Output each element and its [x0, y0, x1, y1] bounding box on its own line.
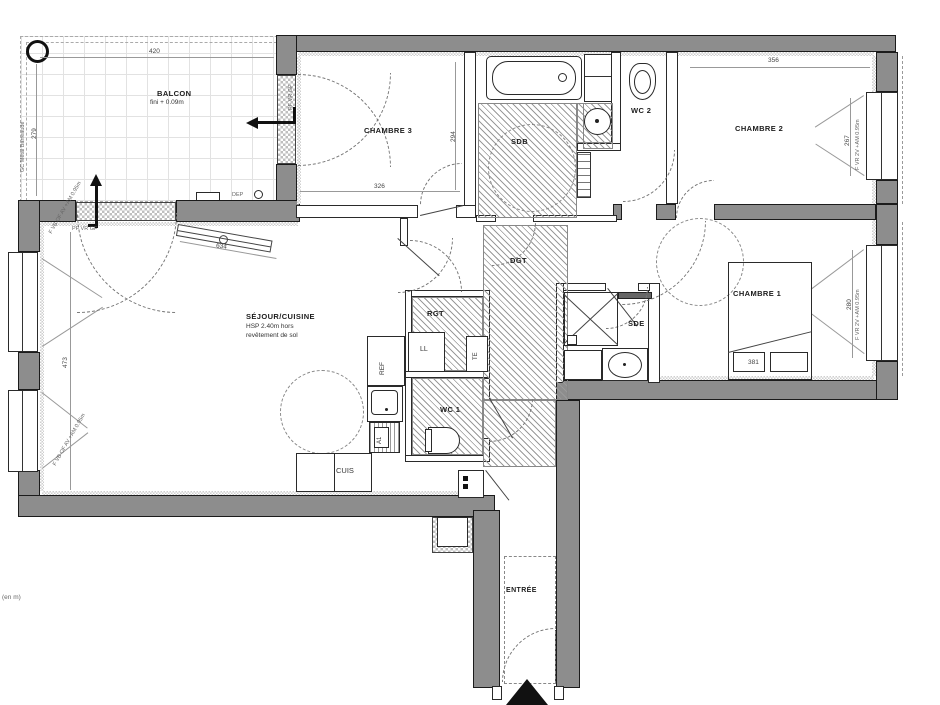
sde-cabinet	[564, 350, 602, 380]
faucet-dot-icon	[623, 363, 626, 366]
wall-corridor-right	[556, 400, 580, 688]
label-washer: LL	[420, 346, 428, 353]
turning-circle-sdb	[488, 124, 576, 212]
room-label-dgt: DGT	[510, 256, 527, 265]
towel-radiator-icon	[577, 152, 591, 198]
room-note-balcon: fini + 0.09m	[150, 99, 184, 106]
partition-ch3-sdb	[464, 52, 476, 208]
room-note-sejour-2: revêtement de sol	[246, 332, 298, 339]
sink-basin-icon	[371, 390, 398, 415]
room-label-chambre2: CHAMBRE 2	[735, 124, 783, 133]
arrow-head-up-icon	[90, 174, 102, 186]
annotation-ch2-window: F VR 2V +AM 0.95m	[855, 119, 861, 170]
dim-line	[690, 67, 870, 68]
window-sejour-2	[8, 390, 38, 472]
wall-south	[556, 380, 898, 400]
dim-line	[455, 62, 456, 190]
dim-ch3-width: 326	[374, 183, 385, 190]
entry-direction-icon	[506, 679, 548, 705]
wall-right-ch1-lower	[876, 361, 898, 400]
electrical-panel	[458, 470, 484, 498]
dim-ch2-width: 356	[768, 57, 779, 64]
wall-balcony-bottom-right	[176, 200, 300, 222]
access-arrow-up-icon	[95, 186, 98, 228]
room-note-sejour-1: HSP 2.40m hors	[246, 323, 294, 330]
window-sejour-1	[8, 252, 38, 352]
wall-ch1-top-c	[714, 204, 876, 220]
wall-ch1-top-b	[656, 204, 676, 220]
annotation-ch1-window: F VR 2V +AM 0.95m	[855, 289, 861, 340]
turning-circle-cuisine	[280, 370, 364, 454]
room-label-entree: ENTRÉE	[506, 587, 537, 594]
dim-ch2-window: 267	[844, 135, 851, 146]
facade-line	[902, 222, 903, 376]
window-chambre2	[866, 92, 898, 180]
arrow-head-left-icon	[246, 117, 258, 129]
window-chambre1	[866, 245, 898, 361]
entry-door-jamb	[554, 686, 564, 700]
wall-right-ch2-lower	[876, 180, 898, 204]
room-label-chambre1: CHAMBRE 1	[733, 289, 781, 298]
insulation-strip	[42, 491, 476, 495]
wall-left-middle	[18, 352, 40, 390]
dim-ch3-height: 294	[450, 131, 457, 142]
floor-plan: BALCON fini + 0.09m CHAMBRE 3 SDB WC 2 C…	[0, 0, 940, 705]
facade-line	[902, 56, 903, 204]
toilet-bowl-wc2	[634, 70, 651, 94]
fridge-box	[367, 336, 405, 386]
dim-ch1-window: 280	[846, 299, 853, 310]
dim-ch1-bed: 381	[748, 359, 759, 366]
dim-sejour-diag: 634	[216, 242, 228, 250]
wall-top	[296, 35, 896, 52]
label-dishwasher: A1	[377, 437, 383, 444]
partition-wc2-ch2	[666, 52, 678, 204]
dim-balcon-height: 279	[31, 128, 38, 139]
room-label-sde: SDE	[628, 319, 645, 328]
bathtub-drain-icon	[558, 73, 567, 82]
wall-right-ch2-upper	[876, 52, 898, 92]
insulation-strip	[40, 222, 44, 491]
window-swing-line	[811, 249, 864, 290]
dim-balcon-width: 420	[149, 48, 160, 55]
shower-drain-icon	[567, 335, 577, 345]
room-label-sdb: SDB	[511, 137, 528, 146]
entree-zone	[504, 556, 556, 684]
faucet-dot-icon	[595, 119, 599, 123]
balcony-railing	[26, 42, 277, 201]
window-swing-line	[42, 307, 103, 347]
balcony-column-icon	[26, 40, 49, 63]
duct-box-inner	[437, 517, 468, 547]
label-dryer: TE	[473, 352, 479, 360]
room-label-wc2: WC 2	[631, 106, 651, 115]
annotation-balcony-railing: GC Métal Barreaudé	[20, 122, 26, 172]
access-arrow-left-icon	[258, 121, 296, 124]
drain-icon	[254, 190, 263, 199]
dim-line	[70, 232, 71, 490]
partition-rgt-wc1	[405, 371, 490, 378]
room-label-wc1: WC 1	[440, 405, 460, 414]
wall-corridor-left	[473, 510, 500, 688]
dim-sejour-height: 473	[62, 357, 69, 368]
toilet-tank-wc1	[425, 429, 432, 452]
dim-line	[40, 57, 274, 58]
entry-door-jamb	[492, 686, 502, 700]
room-label-chambre3: CHAMBRE 3	[364, 126, 412, 135]
wall-balcony-right-upper	[276, 35, 297, 75]
annotation-sejour-door: PF VR GF	[72, 226, 97, 232]
wall-left-upper	[18, 200, 40, 252]
label-kitchen-counter: CUIS	[336, 466, 354, 475]
sdb-cabinet	[584, 54, 612, 102]
label-dep: DEP	[232, 192, 243, 198]
faucet-dot-icon	[385, 408, 388, 411]
room-label-rgt: RGT	[427, 309, 444, 318]
wall-sejour-bottom	[18, 495, 495, 517]
unit-note: (en m)	[2, 594, 21, 601]
label-fridge: REF	[379, 362, 386, 375]
toilet-icon-wc1	[428, 427, 460, 454]
kitchen-counter	[296, 453, 372, 492]
room-label-sejour: SÉJOUR/CUISINE	[246, 312, 315, 321]
wall-right-ch1-upper	[876, 204, 898, 245]
partition-wc1-bottom	[405, 455, 490, 462]
room-label-balcon: BALCON	[157, 89, 191, 98]
dim-line	[300, 191, 460, 192]
annotation-ch3-door: PF VR GF	[288, 85, 294, 110]
pillow-icon	[770, 352, 808, 372]
partition-ch3-bottom	[296, 205, 418, 218]
